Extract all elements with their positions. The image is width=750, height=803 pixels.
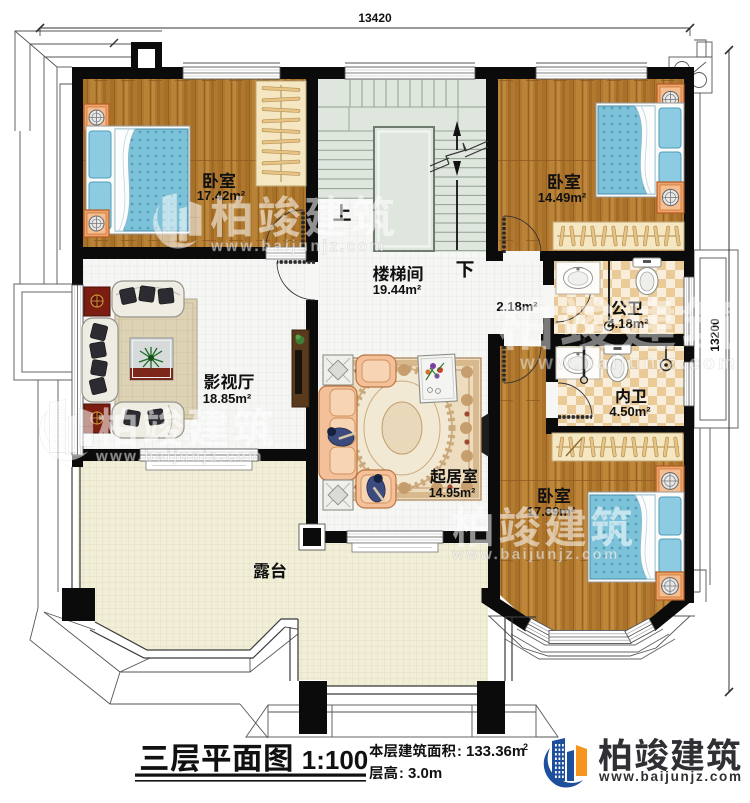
svg-text:3.0m: 3.0m [408,765,442,782]
svg-text:www.baijunjz.com: www.baijunjz.com [451,546,620,563]
svg-text:2: 2 [523,742,528,752]
svg-text:18.85m²: 18.85m² [203,391,252,406]
svg-text:1:100: 1:100 [302,745,369,775]
svg-text::: : [457,744,462,760]
svg-text:19.44m²: 19.44m² [373,282,422,297]
svg-text:13420: 13420 [358,11,392,25]
svg-text:4.50m²: 4.50m² [609,404,651,419]
svg-text:14.95m²: 14.95m² [429,486,476,500]
svg-text:www.baijunjz.com: www.baijunjz.com [210,238,386,255]
svg-text:www.baijunjz.com: www.baijunjz.com [598,769,743,784]
svg-text:www.baijunjz.com: www.baijunjz.com [519,353,738,374]
svg-text:133.36m: 133.36m [466,743,525,760]
svg-text:14.49m²: 14.49m² [538,190,587,205]
svg-text::: : [399,766,404,782]
svg-text:www.baijunjz.com: www.baijunjz.com [95,448,264,465]
